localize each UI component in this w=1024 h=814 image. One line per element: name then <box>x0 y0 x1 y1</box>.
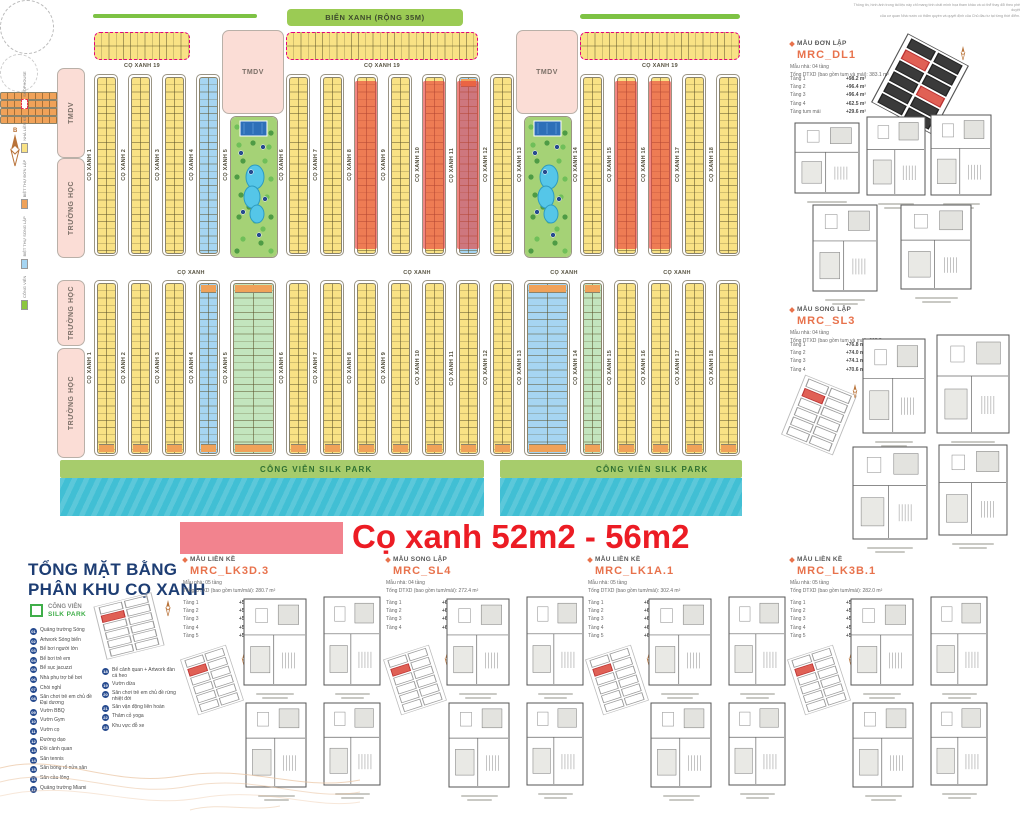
right-panel-header: MẪU SONG LẬPMRC_SL3 <box>790 306 900 327</box>
strip-label-text: CỌ XANH 8 <box>347 352 353 384</box>
card-type-label: MẪU SONG LẬP <box>386 556 496 563</box>
card-type-label: MẪU LIỀN KỀ <box>588 556 698 563</box>
tmdv-block: TMDV <box>222 30 284 114</box>
silk-park-label: CÔNG VIÊN SILK PARK <box>596 465 708 474</box>
orange-cap-cell <box>653 444 668 452</box>
floor-area: +96.4 m² <box>846 92 866 98</box>
legend-item: 21Sân vận động liên hoàn <box>102 705 176 712</box>
floorplan-thumbnail <box>794 122 860 207</box>
strip-label: CỌ XANH 10 <box>414 74 422 256</box>
orange-cap-cell <box>235 444 272 452</box>
legend-item-label: Chòi nghỉ <box>40 686 61 692</box>
strip-label-text: CỌ XANH 11 <box>449 148 455 183</box>
lot-strip <box>286 74 310 256</box>
floor-name: Tầng 4 <box>183 625 199 631</box>
lot-strip <box>490 280 514 456</box>
school-block: TRƯỜNG HỌC <box>57 348 85 458</box>
floor-name: Tầng 2 <box>790 84 806 90</box>
card-keymap-thumbnail <box>592 650 642 710</box>
lot-cells <box>583 283 602 454</box>
lot-cells <box>131 283 150 454</box>
strip-label-text: CỌ XANH 12 <box>483 350 489 385</box>
diamond-icon <box>789 41 795 47</box>
master-plan-poster: Thông tin, hình ảnh trong tài liệu này c… <box>0 0 1024 814</box>
floor-name: Tầng 1 <box>790 342 806 348</box>
strip-label-text: CỌ XANH 11 <box>449 351 455 386</box>
strip-label: CỌ XANH 6 <box>278 74 286 256</box>
floorplan-thumbnail <box>852 702 914 801</box>
floorplan-thumbnail <box>930 596 988 699</box>
orange-cap-cell <box>585 444 600 452</box>
floorplan-thumbnail <box>446 598 510 699</box>
strip-label-text: CỌ XANH 17 <box>675 350 681 385</box>
floor-name: Tầng 2 <box>183 608 199 614</box>
orange-cap-cell <box>529 444 566 452</box>
legend-item-label: Bể bơi trẻ em <box>40 657 70 663</box>
strip-label-text: CỌ XANH 7 <box>313 149 319 181</box>
item-number-badge: 03 <box>30 647 37 654</box>
legend-item: 05Bể sục jacuzzi <box>30 666 96 673</box>
card-keymap-thumbnail <box>187 650 237 710</box>
park-strip <box>524 116 572 258</box>
card-spec-line2: Tổng DTXD (bao gồm tum/mái): 282.0 m² <box>790 588 910 596</box>
co-xanh-header-band <box>0 92 58 100</box>
strip-label-text: CỌ XANH 16 <box>641 350 647 385</box>
row19-strip <box>286 32 478 60</box>
lot-cells <box>719 77 738 254</box>
legend-item-label: Artwork Sóng biển <box>40 638 81 644</box>
strip-label-text: CỌ XANH 3 <box>155 149 161 181</box>
item-number-badge: 18 <box>102 668 109 675</box>
legend-item: 09Vườn BBQ <box>30 709 96 716</box>
floor-name: Tầng 5 <box>790 633 806 639</box>
card-spec: Mẫu nhà: 04 tầngTổng DTXD (bao gồm tum/m… <box>386 580 506 595</box>
mini-legend-item: BIỆT THỰ SONG LẬP <box>21 216 28 268</box>
floorplan-thumbnail <box>243 598 307 699</box>
card-spec-line1: Mẫu nhà: 05 tầng <box>588 580 708 588</box>
floor-area: +98.2 m² <box>846 76 866 82</box>
strip-label: CỌ XANH 4 <box>188 280 196 456</box>
legend-item-label: Quảng trường Sóng <box>40 628 85 634</box>
water-canal <box>60 478 484 516</box>
lot-strip <box>456 280 480 456</box>
legend-swatch-label: CÔNG VIÊN <box>22 276 27 298</box>
orange-cap-cell <box>235 285 272 293</box>
floor-name: Tầng 1 <box>183 600 199 606</box>
floorplan-thumbnail <box>526 702 584 799</box>
lot-strip <box>388 74 412 256</box>
legend-item-label: Bể sục jacuzzi <box>40 666 72 672</box>
lot-strip <box>94 280 118 456</box>
orange-cap-cell <box>99 444 114 452</box>
lot-strip <box>422 74 446 256</box>
lot-strip <box>128 280 152 456</box>
strip-label-text: CỌ XANH 13 <box>517 147 523 182</box>
legend-item-label: Nhà phụ trợ bể bơi <box>40 676 82 682</box>
strip-label: CỌ XANH 7 <box>312 280 320 456</box>
card-spec: Mẫu nhà: 05 tầngTổng DTXD (bao gồm tum/m… <box>790 580 910 595</box>
lot-strip <box>716 74 740 256</box>
floor-name: Tầng 2 <box>790 608 806 614</box>
item-number-badge: 07 <box>30 686 37 693</box>
card-spec-line1: Mẫu nhà: 04 tầng <box>790 330 910 338</box>
floor-area-list: Tầng 1+76.8 m²Tầng 2+74.0 m²Tầng 3+74.1 … <box>790 342 866 375</box>
bottom-card-header: MẪU LIỀN KỀMRC_LK3D.3 <box>183 556 293 577</box>
lot-cells <box>97 283 116 454</box>
diamond-icon <box>385 557 391 563</box>
floor-area: +62.5 m² <box>846 101 866 107</box>
lot-cells <box>459 283 478 454</box>
orange-cap-cell <box>201 444 216 452</box>
card-keymap-thumbnail <box>794 650 844 710</box>
lot-strip <box>614 280 638 456</box>
strip-label-text: CỌ XANH 17 <box>675 147 681 182</box>
floorplan-thumbnail <box>648 598 712 699</box>
orange-cap-cell <box>529 285 566 293</box>
co-xanh-header-band <box>0 116 58 124</box>
strip-label: CỌ XANH 16 <box>640 74 648 256</box>
lot-cells <box>165 77 184 254</box>
floor-row: Tầng 4+62.5 m² <box>790 101 866 107</box>
floor-name: Tầng 2 <box>790 350 806 356</box>
legend-item: 07Chòi nghỉ <box>30 686 96 693</box>
floor-name: Tầng 3 <box>790 358 806 364</box>
floorplan-thumbnail <box>930 702 988 799</box>
floorplan-thumbnail <box>930 114 992 209</box>
legend-item-label: Bể cảnh quan + Artwork đàn cá heo <box>112 668 176 679</box>
item-number-badge: 21 <box>102 705 109 712</box>
floor-row: Tầng 1+76.8 m² <box>790 342 866 348</box>
lot-strip <box>320 280 344 456</box>
mini-legend-item: NHÀ LIỀN KỀ <box>21 116 28 153</box>
legend-swatch-label: SHOPHOUSE <box>22 71 27 97</box>
card-keymap-thumbnail <box>790 382 848 448</box>
orange-cap-cell <box>687 444 702 452</box>
floor-name: Tầng 5 <box>183 633 199 639</box>
mini-legend-item: BIỆT THỰ ĐƠN LẬP <box>21 160 28 210</box>
strip-label: CỌ XANH 18 <box>708 280 716 456</box>
floor-name: Tầng 2 <box>386 608 402 614</box>
co-xanh-header-label: CỌ XANH <box>648 270 706 276</box>
floor-area: +29.6 m² <box>846 109 866 115</box>
strip-label: CỌ XANH 9 <box>380 74 388 256</box>
strip-label: CỌ XANH 1 <box>86 74 94 256</box>
lot-strip <box>682 74 706 256</box>
lot-strip <box>388 280 412 456</box>
floor-name: Tầng 3 <box>790 616 806 622</box>
orange-cap-cell <box>167 444 182 452</box>
diamond-icon <box>789 557 795 563</box>
strip-label-text: CỌ XANH 2 <box>121 149 127 181</box>
strip-label: CỌ XANH 5 <box>222 280 230 456</box>
floor-row: Tầng 2+74.0 m² <box>790 350 866 356</box>
orange-cap-cell <box>325 444 340 452</box>
item-number-badge: 06 <box>30 676 37 683</box>
lot-strip <box>196 280 220 456</box>
lot-strip <box>716 280 740 456</box>
sold-highlight-overlay <box>423 81 445 249</box>
strip-label: CỌ XANH 11 <box>448 74 456 256</box>
lot-cells <box>323 283 342 454</box>
floor-name: Tầng 3 <box>790 92 806 98</box>
lot-strip <box>648 74 672 256</box>
card-keymap-thumbnail <box>390 650 440 710</box>
co-xanh-header-label: CỌ XANH <box>162 270 220 276</box>
floor-name: Tầng 1 <box>386 600 402 606</box>
floor-name: Tầng 3 <box>183 616 199 622</box>
bottom-card-header: MẪU LIỀN KỀMRC_LK1A.1 <box>588 556 698 577</box>
svg-text:B: B <box>13 128 18 134</box>
lot-strip <box>162 280 186 456</box>
card-type-label: MẪU LIỀN KỀ <box>183 556 293 563</box>
card-type-label: MẪU LIỀN KỀ <box>790 556 900 563</box>
strip-label: CỌ XANH 3 <box>154 280 162 456</box>
strip-label: CỌ XANH 7 <box>312 74 320 256</box>
orange-cap-cell <box>291 444 306 452</box>
floor-name: Tầng 4 <box>790 101 806 107</box>
lot-cells <box>131 77 150 254</box>
lot-cells <box>199 77 218 254</box>
diamond-icon <box>182 557 188 563</box>
orange-cap-cell <box>201 285 216 293</box>
park-strip <box>230 116 278 258</box>
legend-item-label: Sân chơi trẻ em chủ đề rừng nhiệt đới <box>112 691 176 702</box>
lot-strip <box>456 74 480 256</box>
silk-park-label: CÔNG VIÊN SILK PARK <box>260 465 372 474</box>
strip-label: CỌ XANH 8 <box>346 280 354 456</box>
floor-name: Tầng 3 <box>588 616 604 622</box>
lot-strip <box>94 74 118 256</box>
legend-item-label: Bể bơi người lớn <box>40 647 78 653</box>
strip-label: CỌ XANH 15 <box>606 74 614 256</box>
legend-item: 18Bể cảnh quan + Artwork đàn cá heo <box>102 668 176 679</box>
park-swatch-icon <box>30 604 43 617</box>
park-swatch-line1: CÔNG VIÊN <box>48 604 86 611</box>
floorplan-thumbnail <box>866 116 926 209</box>
lot-cells <box>527 283 568 454</box>
legend-item: 03Bể bơi người lớn <box>30 647 96 654</box>
legend-swatch-label: BIỆT THỰ ĐƠN LẬP <box>22 160 27 198</box>
legend-item: 19Vườn dừa <box>102 682 176 689</box>
floor-row: Tầng 3+96.4 m² <box>790 92 866 98</box>
strip-label: CỌ XANH 12 <box>482 74 490 256</box>
strip-label: CỌ XANH 11 <box>448 280 456 456</box>
legend-item-label: Vườn BBQ <box>40 709 65 715</box>
floorplan-thumbnail <box>650 702 712 801</box>
item-number-badge: 19 <box>102 682 109 689</box>
silk-park-band: CÔNG VIÊN SILK PARK <box>500 460 742 478</box>
strip-label-text: CỌ XANH 10 <box>415 147 421 182</box>
strip-label: CỌ XANH 12 <box>482 280 490 456</box>
lot-strip <box>422 280 446 456</box>
disclaimer-line1: Thông tin, hình ảnh trong tài liệu này c… <box>844 3 1020 14</box>
legend-swatch <box>21 143 28 153</box>
strip-label-text: CỌ XANH 1 <box>87 352 93 384</box>
item-number-badge: 02 <box>30 638 37 645</box>
sold-highlight-overlay <box>457 81 479 249</box>
lot-cells <box>651 283 670 454</box>
card-spec: Mẫu nhà: 05 tầngTổng DTXD (bao gồm tum/m… <box>588 580 708 595</box>
card-code: MRC_LK1A.1 <box>595 565 698 577</box>
banner-color-swatch <box>180 522 343 554</box>
card-spec-line1: Mẫu nhà: 05 tầng <box>790 580 910 588</box>
floorplan-thumbnail <box>526 596 584 699</box>
bottom-card-header: MẪU LIỀN KỀMRC_LK3B.1 <box>790 556 900 577</box>
item-number-badge: 04 <box>30 657 37 664</box>
disclaimer-line2: của cơ quan Nhà nước có thẩm quyền và qu… <box>844 14 1020 19</box>
card-code: MRC_SL4 <box>393 565 496 577</box>
legend-item: 04Bể bơi trẻ em <box>30 657 96 664</box>
lot-cells <box>289 77 308 254</box>
strip-label: CỌ XANH 16 <box>640 280 648 456</box>
floor-name: Tầng 1 <box>790 600 806 606</box>
lot-cells <box>199 283 218 454</box>
orange-cap-cell <box>721 444 736 452</box>
strip-label-text: CỌ XANH 12 <box>483 147 489 182</box>
lot-cells <box>719 283 738 454</box>
orange-cap-cell <box>359 444 374 452</box>
floor-row: Tầng 4+70.6 m² <box>790 367 866 373</box>
strip-label-text: CỌ XANH 14 <box>573 350 579 385</box>
lot-cells <box>391 283 410 454</box>
floor-row: Tầng 3+74.1 m² <box>790 358 866 364</box>
strip-label-text: CỌ XANH 10 <box>415 350 421 385</box>
park-swatch-line2: SILK PARK <box>48 611 86 618</box>
lot-cells <box>165 283 184 454</box>
floorplan-thumbnail <box>728 702 786 799</box>
lot-cells <box>685 77 704 254</box>
sold-highlight-overlay <box>649 81 671 249</box>
lot-cells <box>493 283 512 454</box>
item-number-badge: 08 <box>30 695 37 702</box>
floorplan-thumbnail <box>938 444 1008 549</box>
beach-bar: BIỂN XANH (RỘNG 35M) <box>287 9 463 26</box>
floor-name: Tầng 4 <box>588 625 604 631</box>
floor-name: Tầng 2 <box>588 608 604 614</box>
card-code: MRC_LK3D.3 <box>190 565 293 577</box>
diamond-icon <box>587 557 593 563</box>
disclaimer-text: Thông tin, hình ảnh trong tài liệu này c… <box>844 3 1020 19</box>
lot-strip <box>320 74 344 256</box>
orange-cap-cell <box>393 444 408 452</box>
block-label: TRƯỜNG HỌC <box>68 376 75 430</box>
compass-arc-decoration <box>0 0 54 54</box>
row19-strip <box>580 32 740 60</box>
lot-strip <box>614 74 638 256</box>
strip-label: CỌ XANH 2 <box>120 74 128 256</box>
park-swatch-row: CÔNG VIÊN SILK PARK <box>30 604 86 618</box>
strip-label: CỌ XANH 14 <box>572 280 580 456</box>
strip-label-text: CỌ XANH 15 <box>607 350 613 385</box>
card-spec-line2: Tổng DTXD (bao gồm tum/mái): 272.4 m² <box>386 588 506 596</box>
strip-label-text: CỌ XANH 3 <box>155 352 161 384</box>
floorplan-thumbnail <box>728 596 786 699</box>
legend-item: 01Quảng trường Sóng <box>30 628 96 635</box>
strip-label-text: CỌ XANH 4 <box>189 149 195 181</box>
mini-legend-item: CÔNG VIÊN <box>21 276 28 310</box>
orange-cap-cell <box>461 444 476 452</box>
strip-label: CỌ XANH 9 <box>380 280 388 456</box>
strip-label: CỌ XANH 10 <box>414 280 422 456</box>
item-number-badge: 09 <box>30 709 37 716</box>
floorplan-thumbnail <box>852 446 928 553</box>
row19-label: CỌ XANH 19 <box>102 63 182 69</box>
lot-cells <box>289 283 308 454</box>
legend-swatch <box>21 199 28 209</box>
legend-swatch-label: NHÀ LIỀN KỀ <box>22 116 27 141</box>
strip-label-text: CỌ XANH 1 <box>87 149 93 181</box>
co-xanh-header-label: CỌ XANH <box>524 270 604 276</box>
floor-name: Tầng 4 <box>790 367 806 373</box>
compass-arc-decoration <box>0 54 38 92</box>
strip-label: CỌ XANH 15 <box>606 280 614 456</box>
lot-strip <box>286 280 310 456</box>
mini-legend-item: SHOPHOUSE <box>21 71 28 109</box>
block-label: TMDV <box>242 69 264 76</box>
lot-strip <box>128 74 152 256</box>
strip-label-text: CỌ XANH 13 <box>517 350 523 385</box>
floor-row: Tầng 1+98.2 m² <box>790 76 866 82</box>
strip-label: CỌ XANH 2 <box>120 280 128 456</box>
tmdv-block: TMDV <box>57 68 85 158</box>
lot-cells <box>425 283 444 454</box>
lot-cells <box>357 283 376 454</box>
strip-label-text: CỌ XANH 5 <box>223 352 229 384</box>
orange-cap-cell <box>585 285 600 293</box>
strip-label: CỌ XANH 17 <box>674 280 682 456</box>
strip-label-text: CỌ XANH 18 <box>709 147 715 182</box>
sold-highlight-overlay <box>355 81 377 249</box>
strip-label-text: CỌ XANH 15 <box>607 147 613 182</box>
legend-item: 06Nhà phụ trợ bể bơi <box>30 676 96 683</box>
floor-name: Tầng 4 <box>790 625 806 631</box>
floorplan-thumbnail <box>850 598 914 699</box>
floor-name: Tầng 3 <box>386 616 402 622</box>
legend-title-line1: TỔNG MẶT BẰNG <box>28 560 206 580</box>
lot-strip <box>354 74 378 256</box>
sold-highlight-overlay <box>615 81 637 249</box>
compass-icon <box>160 598 176 618</box>
orange-cap-cell <box>133 444 148 452</box>
lot-cells <box>391 77 410 254</box>
legend-swatch-label: BIỆT THỰ SONG LẬP <box>22 216 27 256</box>
floor-name: Tầng 4 <box>386 625 402 631</box>
item-number-badge: 22 <box>102 714 109 721</box>
legend-item: 20Sân chơi trẻ em chủ đề rừng nhiệt đới <box>102 691 176 702</box>
strip-label-text: CỌ XANH 9 <box>381 149 387 181</box>
block-label: TMDV <box>536 69 558 76</box>
strip-label: CỌ XANH 8 <box>346 74 354 256</box>
lot-cells <box>233 283 274 454</box>
strip-label: CỌ XANH 13 <box>516 280 524 456</box>
co-xanh-header-band <box>0 100 58 108</box>
lot-cells <box>583 77 602 254</box>
lot-strip <box>648 280 672 456</box>
legend-swatch <box>21 300 28 310</box>
strip-label-text: CỌ XANH 16 <box>641 147 647 182</box>
item-number-badge: 01 <box>30 628 37 635</box>
silk-park-band: CÔNG VIÊN SILK PARK <box>60 460 484 478</box>
floor-name: Tầng 1 <box>790 76 806 82</box>
contour-decoration <box>0 722 360 814</box>
legend-item: 02Artwork Sóng biển <box>30 638 96 645</box>
school-block: TRƯỜNG HỌC <box>57 158 85 258</box>
floor-area: +96.4 m² <box>846 84 866 90</box>
strip-label: CỌ XANH 4 <box>188 74 196 256</box>
strip-label-text: CỌ XANH 7 <box>313 352 319 384</box>
compass-icon <box>848 382 862 400</box>
floorplan-thumbnail <box>900 204 972 303</box>
